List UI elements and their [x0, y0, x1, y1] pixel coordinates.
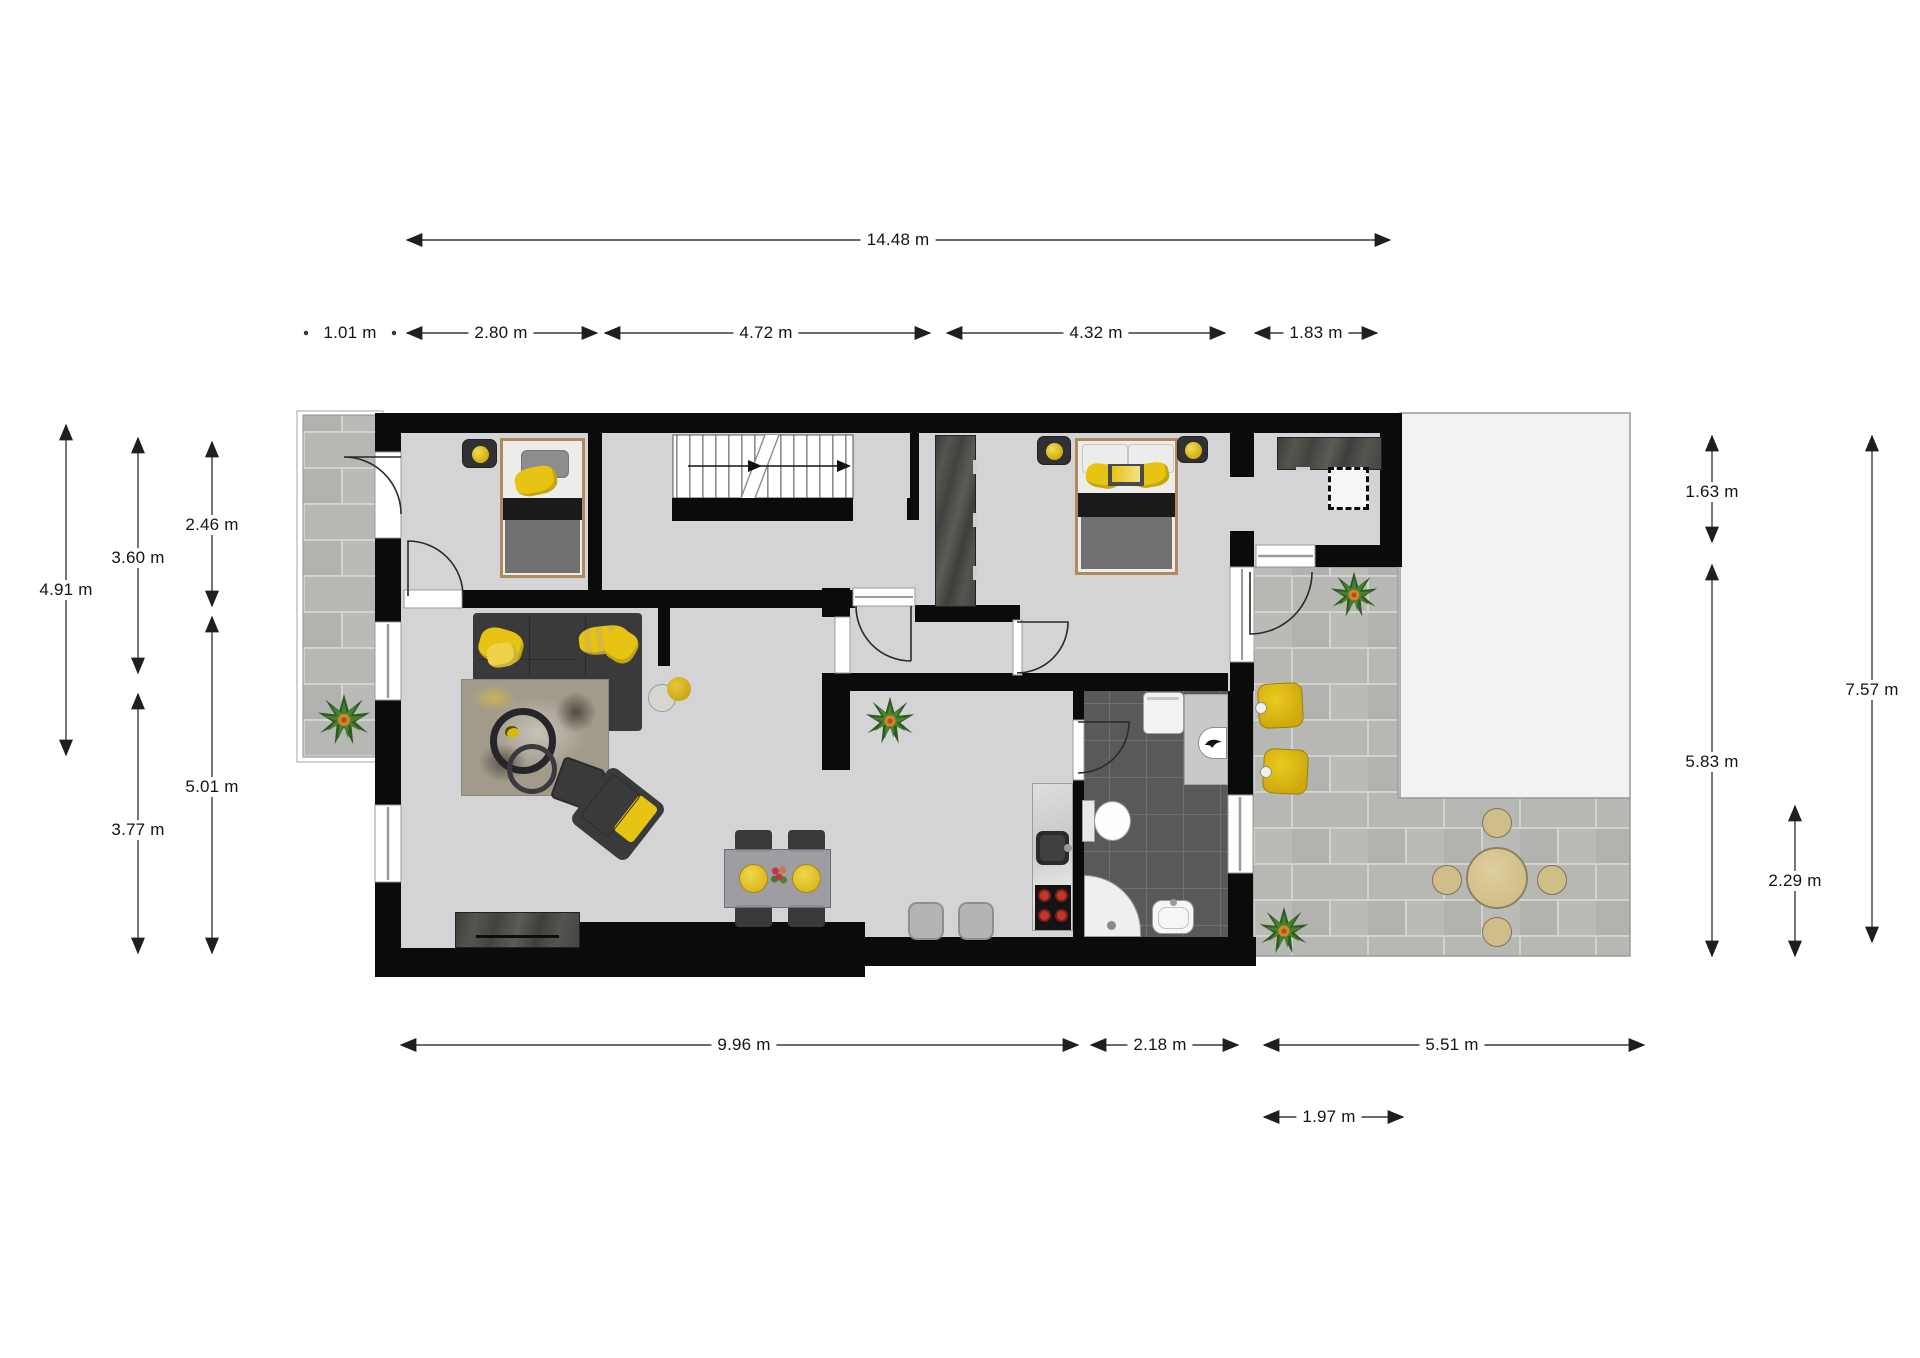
dimension-right-1: 1.63 m [1679, 482, 1744, 502]
dimension-left-3: 2.46 m [179, 515, 244, 535]
dimension-left-5: 3.77 m [105, 820, 170, 840]
burner [1055, 909, 1068, 922]
terrace-table [1466, 847, 1528, 909]
handle [973, 566, 977, 580]
wall-lamp-icon [463, 440, 496, 467]
dimension-right-2: 5.83 m [1679, 752, 1744, 772]
bed-tray-cloth [1112, 466, 1140, 482]
dimension-top-5: 1.83 m [1283, 323, 1348, 343]
bed-runner [1078, 493, 1175, 517]
cooktop [1035, 885, 1071, 930]
bathroom-door-opening [1073, 720, 1084, 780]
toilet [1082, 800, 1131, 843]
wardrobe [935, 435, 976, 607]
lounge-chair [1257, 682, 1304, 729]
single-bed [500, 438, 585, 578]
wall-lamp-icon [1038, 437, 1070, 464]
coffee-table-ring [507, 744, 557, 794]
yellow-pillow [513, 463, 560, 499]
dashed-void-outline [1328, 467, 1369, 510]
handle [1296, 467, 1310, 471]
dimension-bottom-2: 2.18 m [1127, 1035, 1192, 1055]
dimension-top-1: 1.01 m [317, 323, 382, 343]
lounge-chair [1262, 748, 1309, 795]
wall-lamp-icon [1178, 437, 1207, 462]
plant-icon [862, 695, 918, 747]
boiler [1198, 727, 1227, 759]
burner [1038, 889, 1051, 902]
double-bed [1075, 438, 1178, 575]
floor-lamp-icon [648, 677, 694, 713]
plate [792, 864, 821, 893]
tv-sideboard [455, 912, 580, 948]
bedroom2-door-opening [1013, 620, 1022, 675]
dimension-top-3: 4.72 m [733, 323, 798, 343]
plate [739, 864, 768, 893]
dimension-bottom-1: 9.96 m [711, 1035, 776, 1055]
plant-icon [314, 692, 374, 748]
handle [973, 460, 977, 474]
bar-stool [958, 902, 994, 940]
bed-runner [503, 498, 582, 520]
bathroom-sink [1152, 900, 1194, 934]
dimension-bottom-4: 1.97 m [1296, 1107, 1361, 1127]
bed-blanket [505, 520, 580, 573]
dimension-top-4: 4.32 m [1063, 323, 1128, 343]
burner [1055, 889, 1068, 902]
bedroom1-door-opening [404, 590, 462, 608]
faucet-icon [1170, 899, 1177, 906]
dimension-bottom-3: 5.51 m [1419, 1035, 1484, 1055]
rug-decor [505, 726, 519, 738]
dimension-left-4: 5.01 m [179, 777, 244, 797]
dining-chair [735, 905, 772, 927]
terrace-chair [1537, 865, 1567, 895]
plant-icon [1255, 905, 1313, 957]
kitchen-counter [1032, 783, 1073, 931]
terrace-chair [1432, 865, 1462, 895]
floor-plan-canvas: 14.48 m 1.01 m 2.80 m 4.72 m 4.32 m 1.83… [0, 0, 1920, 1358]
burner [1038, 909, 1051, 922]
dimension-right-4: 7.57 m [1839, 680, 1904, 700]
terrace-chair [1482, 917, 1512, 947]
bar-stool [908, 902, 944, 940]
plant-icon [1324, 570, 1384, 620]
faucet-icon [1064, 844, 1072, 852]
flower-centerpiece [770, 865, 788, 885]
bed-blanket [1081, 517, 1172, 569]
dimension-left-2: 3.60 m [105, 548, 170, 568]
washing-machine [1143, 692, 1184, 734]
handle [973, 513, 977, 527]
terrace-chair [1482, 808, 1512, 838]
handle-line [476, 935, 559, 938]
boiler-icon [1204, 736, 1224, 752]
floor-plan-drawing [0, 0, 1920, 1358]
roof-area [1400, 413, 1630, 798]
living-door-opening [835, 617, 850, 673]
kitchen-sink [1036, 831, 1069, 865]
dimension-top-2: 2.80 m [468, 323, 533, 343]
dining-chair [788, 905, 825, 927]
dressing-counter [1277, 437, 1382, 470]
dimension-left-1: 4.91 m [33, 580, 98, 600]
drain-icon [1107, 921, 1116, 930]
dimension-overall-width: 14.48 m [861, 230, 936, 250]
dimension-right-3: 2.29 m [1762, 871, 1827, 891]
dining-set [724, 828, 831, 928]
